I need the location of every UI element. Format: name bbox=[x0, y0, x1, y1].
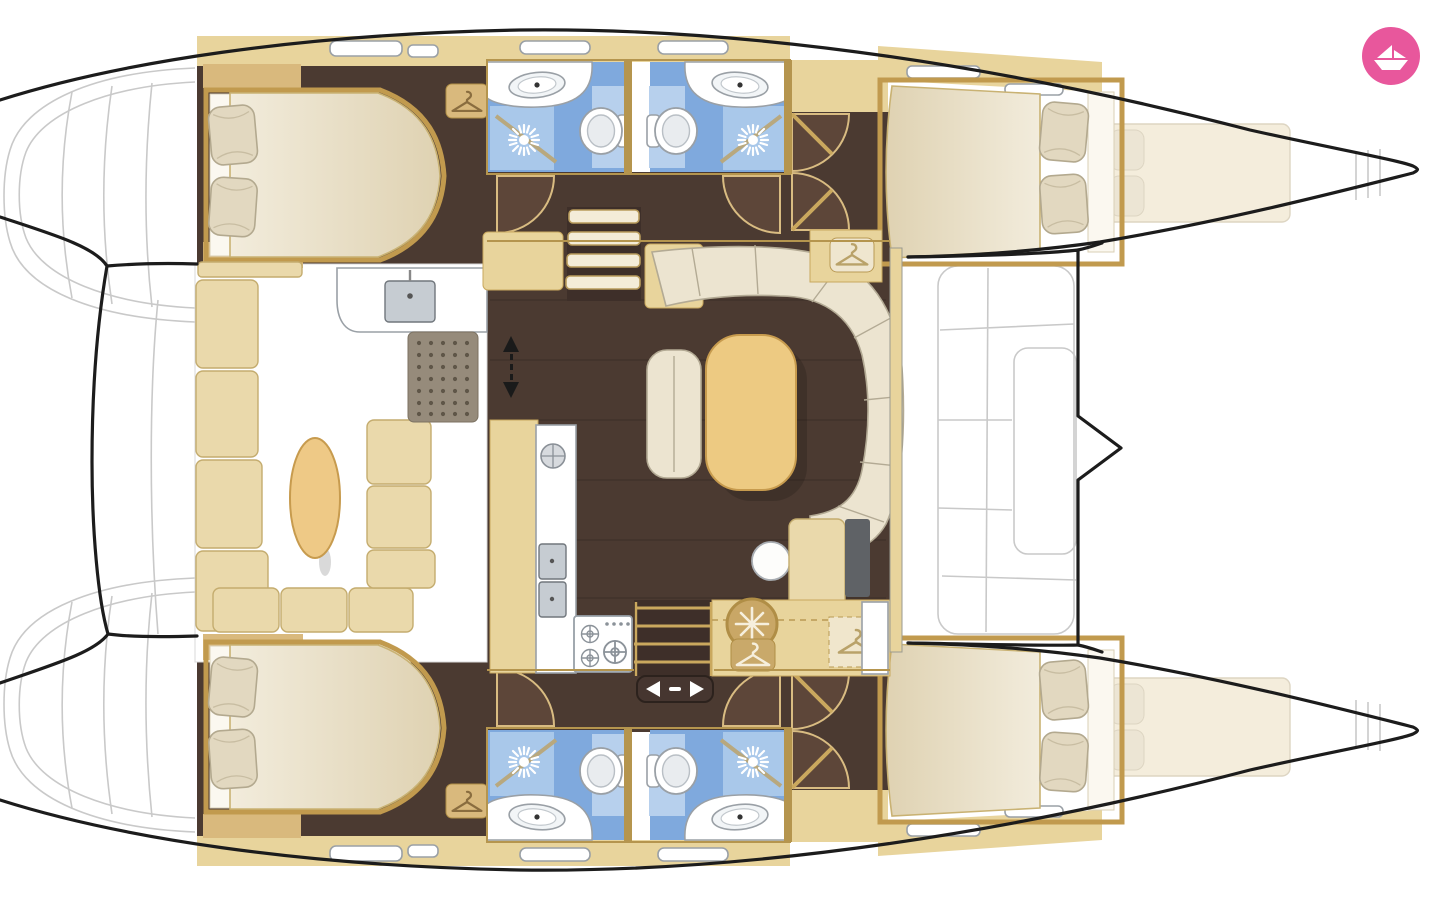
toilet bbox=[580, 748, 630, 794]
deck-edge-line bbox=[151, 300, 158, 634]
bathroom-starboard-aft bbox=[487, 730, 630, 840]
nav-seat bbox=[845, 519, 870, 597]
stairs-port-hull bbox=[566, 207, 641, 301]
settee-cushion bbox=[367, 486, 431, 548]
port-transom-platform bbox=[4, 68, 195, 322]
pillow bbox=[208, 728, 258, 789]
bed-sheet bbox=[1088, 92, 1114, 252]
bed-mattress-double bbox=[230, 93, 440, 257]
stairs-starboard-hull bbox=[634, 600, 714, 676]
shower-spray-icon bbox=[509, 747, 539, 777]
bathroom-starboard-fwd bbox=[647, 730, 790, 840]
bed-mattress-double bbox=[230, 645, 440, 809]
toilet bbox=[647, 108, 697, 154]
settee-cushion bbox=[196, 280, 258, 368]
saloon-table bbox=[706, 335, 796, 490]
sliding-door bbox=[637, 676, 713, 702]
bed-mattress-double bbox=[886, 86, 1040, 258]
saloon-side-wall bbox=[890, 248, 902, 652]
pillow bbox=[208, 104, 259, 166]
wardrobe-fwd-port bbox=[810, 230, 882, 282]
brand-logo[interactable] bbox=[1362, 27, 1420, 85]
shelf bbox=[203, 64, 301, 88]
fridge-wardrobe-block bbox=[712, 599, 890, 676]
bed-mattress-double bbox=[886, 644, 1040, 816]
settee-corner bbox=[367, 550, 435, 588]
cabin-fwd-port bbox=[880, 80, 1122, 264]
settee-cushion bbox=[196, 460, 262, 548]
pillow bbox=[1039, 173, 1089, 234]
pillar bbox=[862, 602, 888, 674]
wardrobe bbox=[731, 639, 775, 671]
shower-spray-icon bbox=[509, 125, 539, 155]
wardrobe bbox=[446, 84, 488, 118]
pillow bbox=[208, 656, 259, 718]
pillow bbox=[1039, 101, 1090, 163]
bathroom-port-fwd bbox=[647, 62, 790, 172]
toilet bbox=[580, 108, 630, 154]
pillow bbox=[1039, 659, 1090, 721]
shower-spray-icon bbox=[738, 125, 768, 155]
cabin-fwd-starboard bbox=[880, 638, 1122, 822]
forepeak-berth-starboard bbox=[1106, 678, 1380, 776]
dinette-oval-table bbox=[290, 438, 340, 558]
stove bbox=[574, 616, 632, 672]
counter-sink bbox=[385, 281, 435, 322]
settee-cushion bbox=[281, 588, 347, 632]
floor-plan-canvas bbox=[0, 0, 1440, 900]
settee-cushion bbox=[213, 588, 279, 632]
pillow bbox=[208, 176, 258, 237]
stool bbox=[752, 542, 790, 580]
shower-spray-icon bbox=[738, 747, 768, 777]
bed-sheet bbox=[1088, 650, 1114, 810]
settee-cushion bbox=[367, 420, 431, 484]
deck-sunpads bbox=[938, 266, 1076, 634]
settee-cushion bbox=[196, 371, 258, 457]
forepeak-berth-port bbox=[1106, 124, 1380, 222]
wardrobe bbox=[446, 784, 488, 818]
shelf bbox=[203, 814, 301, 838]
galley-counter bbox=[490, 420, 538, 673]
settee-cushion bbox=[349, 588, 413, 632]
floor-plan-image bbox=[0, 0, 1440, 900]
bathroom-port-aft bbox=[487, 62, 630, 172]
starboard-transom-platform bbox=[4, 578, 195, 832]
floor-grate bbox=[408, 332, 478, 422]
chart-seat bbox=[789, 519, 845, 607]
toilet bbox=[647, 748, 697, 794]
pillow bbox=[1039, 731, 1089, 792]
